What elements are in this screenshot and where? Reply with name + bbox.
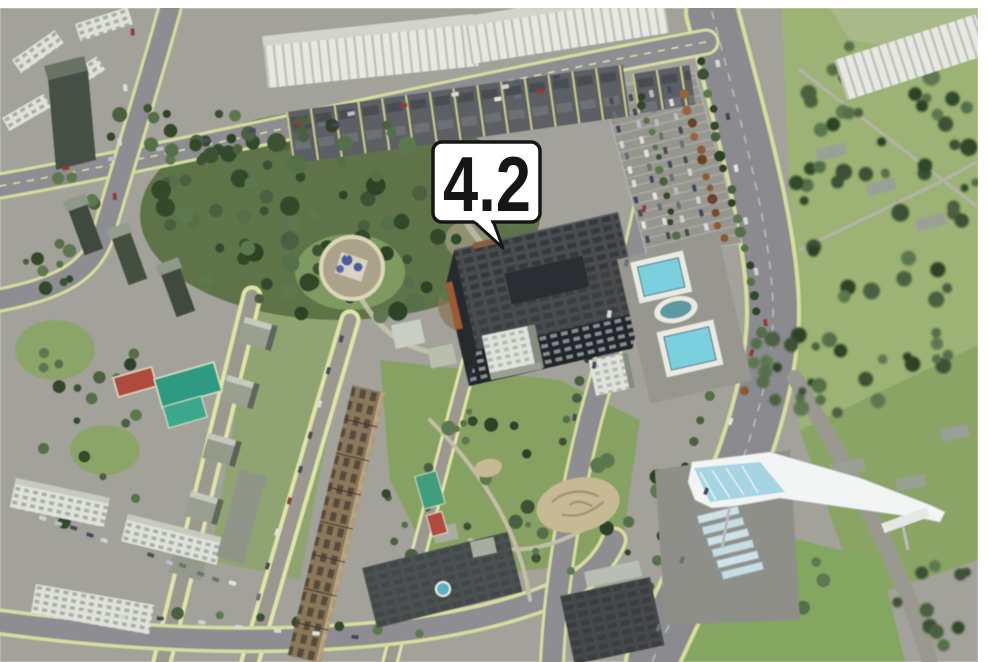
church [321, 237, 383, 299]
small-pool [436, 582, 450, 596]
aerial-render-canvas: 4.2 [0, 0, 988, 662]
frame-top [0, 0, 988, 8]
frame-right [978, 0, 988, 662]
marker-label: 4.2 [443, 140, 531, 228]
aerial-map: 4.2 [0, 0, 988, 662]
